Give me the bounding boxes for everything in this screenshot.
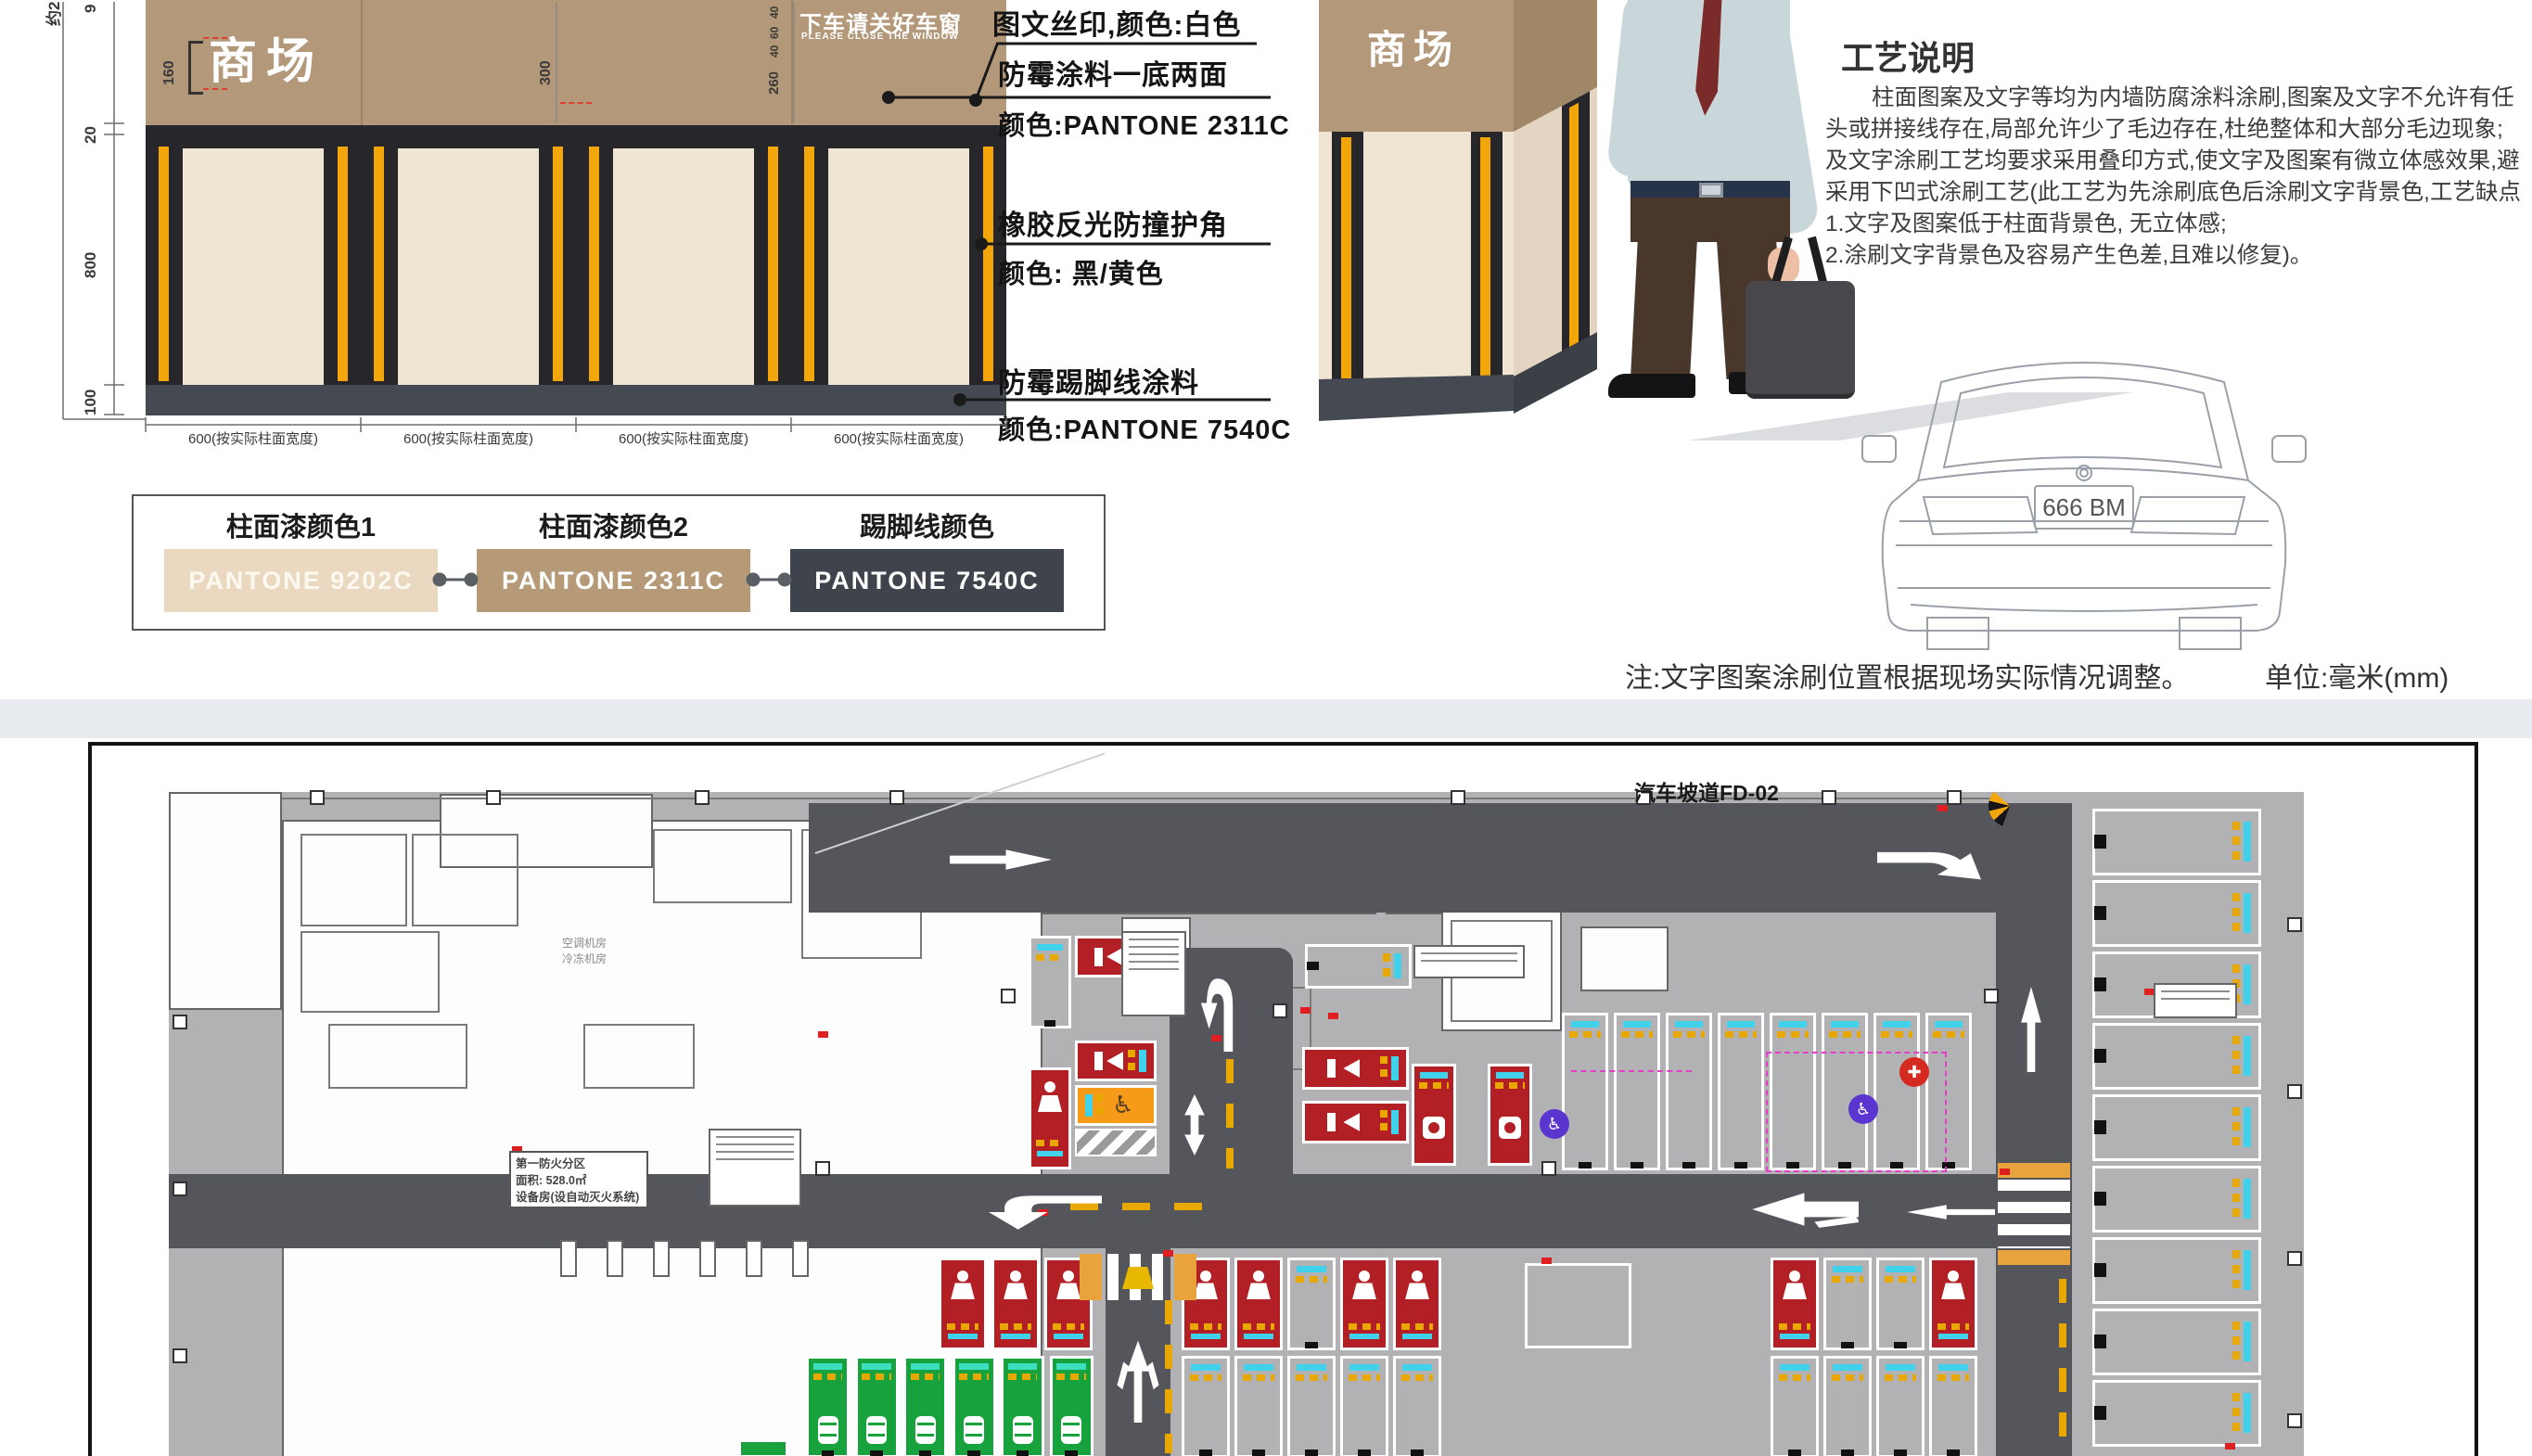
stall-mark bbox=[1777, 1031, 1808, 1038]
stall-mark bbox=[2244, 964, 2251, 1005]
room-outline bbox=[653, 829, 792, 903]
stall-mark bbox=[1496, 1072, 1523, 1079]
stall-mark bbox=[1243, 1374, 1275, 1381]
dim-about2: 约2 bbox=[41, 2, 64, 26]
stall-mark bbox=[2244, 822, 2251, 862]
stall-mark bbox=[1247, 1283, 1271, 1299]
stall-mark bbox=[1783, 1283, 1807, 1299]
stall-mark bbox=[1244, 1334, 1273, 1339]
room-outline bbox=[328, 1024, 467, 1089]
parking-stall-gh bbox=[2092, 1023, 2261, 1090]
stall-mark bbox=[1682, 1162, 1695, 1169]
dim-60: 60 bbox=[768, 27, 781, 39]
accessible-circle-icon: ♿ bbox=[1540, 1109, 1569, 1139]
fire-zone-line: 设备房(设自动灭火系统) bbox=[516, 1189, 642, 1206]
legend-swatch: PANTONE 9202C bbox=[164, 549, 438, 612]
corner-guard-yellow-stripe bbox=[159, 147, 169, 381]
unit-note: 单位:毫米(mm) bbox=[2265, 655, 2449, 696]
stall-mark bbox=[1343, 1113, 1360, 1131]
corner-guard-yellow-stripe bbox=[338, 147, 348, 381]
crosswalk bbox=[1998, 1180, 2070, 1248]
parking-stall-rvb bbox=[1412, 1064, 1456, 1166]
boundary-magenta-line bbox=[1571, 1070, 1692, 1072]
stall-mark bbox=[1727, 1021, 1756, 1028]
parking-stall-gh bbox=[2092, 1094, 2261, 1161]
stall-mark bbox=[1779, 1021, 1808, 1028]
stall-mark bbox=[1937, 1323, 1970, 1330]
parking-stall-gv bbox=[1876, 1258, 1925, 1350]
stall-mark bbox=[2244, 1036, 2251, 1077]
stall-mark bbox=[1725, 1031, 1756, 1038]
parking-stall-gh bbox=[2092, 1309, 2261, 1375]
stall-mark bbox=[2244, 1393, 2251, 1434]
parking-stall-gv bbox=[1287, 1258, 1336, 1350]
stall-mark bbox=[915, 1416, 936, 1444]
column-square bbox=[1451, 790, 1465, 805]
stall-mark bbox=[1841, 1450, 1855, 1456]
stall-mark bbox=[2244, 1250, 2251, 1291]
column-panel-pantone9202c bbox=[183, 148, 324, 385]
stall-mark bbox=[1305, 1342, 1319, 1348]
dim-300: 300 bbox=[538, 60, 555, 85]
parking-stall-gv bbox=[1876, 1356, 1925, 1456]
stall-mark bbox=[1106, 1052, 1123, 1070]
stall-mark bbox=[1734, 1162, 1747, 1169]
stall-mark bbox=[911, 1363, 940, 1370]
parking-stall-gh bbox=[2092, 1380, 2261, 1447]
corner-guard-yellow-stripe bbox=[804, 147, 814, 381]
stall-mark bbox=[1789, 1271, 1800, 1282]
stall-mark bbox=[1391, 1056, 1399, 1080]
car-icon-line bbox=[820, 1434, 837, 1437]
process-note-line: 头或拼接线存在,局部允许少了毛边存在,杜绝整体和大部分毛边现象; bbox=[1825, 111, 2503, 144]
pseudo-text-line bbox=[716, 1158, 794, 1160]
callout-line1: 防霉踢脚线涂料 bbox=[998, 360, 1199, 401]
stall-mark bbox=[959, 1363, 988, 1370]
stall-mark bbox=[1044, 1081, 1055, 1092]
callout-line2: 颜色:PANTONE 7540C bbox=[998, 408, 1291, 447]
building-zone bbox=[169, 792, 282, 1010]
dim-9: 9 bbox=[82, 5, 100, 13]
stall-mark bbox=[2232, 1036, 2240, 1077]
pseudo-text-line bbox=[1129, 939, 1179, 940]
column-square bbox=[2287, 1084, 2302, 1099]
stall-mark bbox=[1065, 1450, 1077, 1456]
stall-mark bbox=[1252, 1450, 1266, 1456]
guard-yellow-stripe bbox=[1341, 137, 1351, 378]
kickline-pantone7540c bbox=[146, 385, 1006, 415]
stall-mark bbox=[1788, 1450, 1802, 1456]
perspective-left-face: 商场 bbox=[1319, 0, 1514, 421]
car-icon-line bbox=[1063, 1423, 1080, 1425]
parking-stall-ev bbox=[806, 1356, 850, 1456]
stall-mark bbox=[959, 1373, 988, 1380]
process-note-line: 柱面图案及文字等均为内墙防腐涂料涂刷,图案及文字不允许有任 bbox=[1872, 80, 2514, 112]
corner-guard-yellow-stripe bbox=[589, 147, 599, 381]
dim-20: 20 bbox=[82, 126, 100, 144]
parking-stall-rv bbox=[1771, 1258, 1819, 1350]
column-panel-pantone9202c bbox=[828, 148, 969, 385]
parking-stall-rv bbox=[1393, 1258, 1441, 1350]
stall-mark bbox=[1675, 1021, 1704, 1028]
stall-mark bbox=[2094, 1192, 2106, 1206]
parking-stall-gv bbox=[1614, 1013, 1660, 1170]
stall-mark bbox=[2244, 1322, 2251, 1362]
stall-mark bbox=[1054, 1334, 1083, 1339]
room-outline bbox=[412, 834, 518, 926]
stall-mark bbox=[1420, 1072, 1447, 1079]
stall-mark bbox=[1779, 1374, 1811, 1381]
stall-mark bbox=[1937, 1374, 1970, 1381]
stall-mark bbox=[813, 1363, 842, 1370]
icon-dot bbox=[1504, 1122, 1515, 1133]
stall-mark bbox=[1349, 1323, 1381, 1330]
room-label: 冷冻机房 bbox=[562, 951, 673, 965]
pseudo-text-line bbox=[1129, 968, 1179, 970]
callout-line2: 颜色:PANTONE 2311C bbox=[998, 104, 1290, 143]
legend-title: 柱面漆颜色1 bbox=[164, 505, 438, 544]
dim-800: 800 bbox=[82, 252, 100, 278]
parking-stall-gh bbox=[2092, 809, 2261, 875]
corner-guard-yellow-stripe bbox=[983, 147, 993, 381]
stall-mark bbox=[1053, 1323, 1085, 1330]
column-square bbox=[1947, 790, 1962, 805]
stall-mark bbox=[862, 1363, 890, 1370]
red-align-mark bbox=[203, 37, 227, 39]
parking-stall-rv bbox=[939, 1258, 987, 1350]
stall-mark bbox=[1296, 1374, 1328, 1381]
room-outline bbox=[583, 1024, 695, 1089]
pantone-legend: 柱面漆颜色1PANTONE 9202C柱面漆颜色2PANTONE 2311C踢脚… bbox=[132, 494, 1106, 631]
column-square bbox=[310, 790, 325, 805]
column-square bbox=[1984, 989, 1999, 1003]
column-square bbox=[1541, 1161, 1556, 1176]
stall-mark bbox=[1579, 1162, 1592, 1169]
car-icon-line bbox=[868, 1434, 885, 1437]
pseudo-text-line bbox=[1421, 952, 1517, 954]
callout-line1: 防霉涂料一底两面 bbox=[998, 52, 1228, 93]
legend-title: 柱面漆颜色2 bbox=[477, 505, 750, 544]
width-label-600: 600(按实际柱面宽度) bbox=[403, 428, 533, 448]
road-arrow-merge bbox=[1746, 1185, 1859, 1233]
parking-stall-ev bbox=[1001, 1356, 1044, 1456]
lane-dash-line bbox=[1165, 1300, 1172, 1453]
stall-mark bbox=[919, 1450, 931, 1456]
pseudo-text-line bbox=[716, 1143, 794, 1145]
hatch-zone bbox=[1075, 1129, 1157, 1156]
fire-equipment-mark bbox=[818, 1031, 828, 1038]
stall-mark bbox=[2232, 822, 2240, 862]
parking-stall-gp bbox=[1525, 1263, 1631, 1348]
parking-stall-gv bbox=[1029, 936, 1071, 1028]
stall-mark bbox=[1327, 1059, 1336, 1078]
stall-mark bbox=[1883, 1021, 1912, 1028]
stall-mark bbox=[1423, 1117, 1445, 1139]
license-plate: 666 BM bbox=[2042, 493, 2126, 521]
process-note-line: 2.涂刷文字背景色及容易产生色差,且难以修复)。 bbox=[1825, 237, 2312, 270]
stall-mark bbox=[1191, 1364, 1221, 1371]
stall-mark bbox=[1358, 1450, 1372, 1456]
stall-mark bbox=[1894, 1342, 1908, 1348]
road-arrow-fork bbox=[1113, 1337, 1163, 1423]
road-arrow-left bbox=[1907, 1200, 1995, 1224]
adjust-note: 注:文字图案涂刷位置根据现场实际情况调整。 bbox=[1625, 655, 2189, 696]
parking-stall-gh bbox=[2092, 880, 2261, 947]
stall-mark bbox=[1017, 1450, 1029, 1456]
stall-mark bbox=[1297, 1364, 1326, 1371]
car-rear-illustration: 666 BM bbox=[1835, 306, 2335, 651]
lane-dash-line bbox=[1226, 1059, 1234, 1169]
stall-mark bbox=[1894, 1450, 1908, 1456]
annotation-box bbox=[1121, 931, 1186, 1016]
band-joint-line bbox=[361, 0, 363, 125]
stall-mark bbox=[1621, 1031, 1652, 1038]
column-panel-pantone9202c bbox=[613, 148, 754, 385]
parking-stall-gv bbox=[1823, 1356, 1872, 1456]
stall-mark bbox=[1623, 1021, 1652, 1028]
stall-mark bbox=[1139, 1050, 1146, 1072]
road-arrow-uturn bbox=[989, 1187, 1102, 1235]
stall-mark bbox=[2094, 977, 2106, 991]
pseudo-text-line bbox=[1421, 960, 1517, 962]
parking-stall-gv bbox=[1234, 1356, 1283, 1456]
stall-mark bbox=[1001, 1334, 1030, 1339]
stall-mark bbox=[1008, 1363, 1037, 1370]
stall-mark bbox=[957, 1271, 968, 1282]
left-leg bbox=[1630, 233, 1697, 382]
stall-mark bbox=[1036, 954, 1064, 961]
stall-mark bbox=[1349, 1374, 1381, 1381]
fire-zone-note: 第一防火分区面积: 528.0㎡设备房(设自动灭火系统) bbox=[509, 1151, 648, 1208]
stall-mark bbox=[1004, 1283, 1028, 1299]
column-square bbox=[2287, 917, 2302, 932]
column-square bbox=[889, 790, 904, 805]
stall-mark bbox=[1569, 1031, 1600, 1038]
stall-mark bbox=[2094, 1335, 2106, 1348]
stall-mark bbox=[2244, 893, 2251, 934]
section-divider-band bbox=[0, 699, 2532, 738]
stall-mark bbox=[2094, 1263, 2106, 1277]
stall-mark bbox=[870, 1450, 882, 1456]
building-zone bbox=[1580, 926, 1669, 991]
stall-mark bbox=[1935, 1021, 1963, 1028]
dim-100: 100 bbox=[82, 390, 100, 415]
stall-mark bbox=[1391, 1110, 1399, 1134]
fire-equipment-mark bbox=[1541, 1258, 1552, 1264]
shop-label-elevation: 商场 bbox=[209, 22, 324, 92]
stall-mark bbox=[1056, 1373, 1085, 1380]
stall-mark bbox=[1833, 1266, 1862, 1272]
stall-mark bbox=[1359, 1271, 1370, 1282]
width-label-600: 600(按实际柱面宽度) bbox=[834, 428, 964, 448]
stall-mark bbox=[1380, 1056, 1387, 1080]
stall-mark bbox=[1401, 1323, 1434, 1330]
car-icon-line bbox=[868, 1423, 885, 1425]
stall-mark bbox=[1349, 1334, 1379, 1339]
stall-mark bbox=[1402, 1364, 1432, 1371]
stall-mark bbox=[1010, 1271, 1021, 1282]
ramp-label: 汽车坡道FD-02 bbox=[1634, 775, 1912, 801]
fire-equipment-mark bbox=[2000, 1169, 2010, 1175]
car-icon-line bbox=[965, 1423, 982, 1425]
stall-mark bbox=[1401, 1374, 1434, 1381]
stall-mark bbox=[2094, 835, 2106, 849]
stall-mark bbox=[1190, 1374, 1222, 1381]
parking-stall-gv bbox=[1666, 1013, 1712, 1170]
crosswalk-pad bbox=[1080, 1254, 1102, 1300]
stall-mark bbox=[2232, 1393, 2240, 1434]
process-note-line: 1.文字及图案低于柱面背景色, 无立体感; bbox=[1825, 206, 2227, 238]
parking-stall-ev bbox=[903, 1356, 947, 1456]
stall-mark bbox=[1885, 1374, 1917, 1381]
stall-mark bbox=[948, 1334, 978, 1339]
stall-mark bbox=[1094, 948, 1103, 966]
stall-mark bbox=[1780, 1364, 1809, 1371]
shop-label-perspective: 商场 bbox=[1367, 19, 1460, 75]
stall-mark bbox=[1394, 953, 1401, 979]
belt-buckle bbox=[1699, 183, 1723, 198]
floor-plan-panel: ♿♿♿✚第一防火分区面积: 528.0㎡设备房(设自动灭火系统)空调机房冷冻机房… bbox=[88, 742, 2478, 1456]
stall-mark bbox=[1128, 1050, 1135, 1072]
road-arrow-uturnup bbox=[1200, 976, 1241, 1052]
stall-mark bbox=[2094, 906, 2106, 920]
column-square bbox=[1001, 989, 1016, 1003]
stall-mark bbox=[1190, 1323, 1222, 1330]
stall-mark bbox=[1938, 1364, 1968, 1371]
stall-mark bbox=[2232, 1322, 2240, 1362]
parking-stall-rv bbox=[1340, 1258, 1388, 1350]
stall-mark bbox=[2094, 1406, 2106, 1420]
stall-mark bbox=[1832, 1374, 1864, 1381]
stall-mark bbox=[1947, 1450, 1961, 1456]
column-square bbox=[173, 1181, 187, 1196]
stall-mark bbox=[1885, 1276, 1917, 1283]
stall-mark bbox=[2232, 1250, 2240, 1291]
parking-stall-gv bbox=[1771, 1356, 1819, 1456]
corner-guard-yellow-stripe bbox=[553, 147, 563, 381]
equipment-symbol bbox=[746, 1240, 762, 1277]
fire-zone-line: 第一防火分区 bbox=[516, 1156, 642, 1172]
pseudo-text-line bbox=[1129, 953, 1179, 955]
car-icon-line bbox=[917, 1423, 934, 1425]
stall-mark bbox=[1833, 1364, 1862, 1371]
stall-mark bbox=[1044, 1020, 1056, 1027]
stall-mark bbox=[1402, 1334, 1432, 1339]
stall-mark bbox=[862, 1373, 890, 1380]
stall-mark bbox=[1038, 1095, 1062, 1112]
stall-mark bbox=[1829, 1031, 1860, 1038]
process-notes-title: 工艺说明 bbox=[1841, 32, 1975, 80]
accessible-circle-icon: ♿ bbox=[1848, 1094, 1878, 1124]
hydrant-circle-icon: ✚ bbox=[1899, 1057, 1929, 1087]
callout-line2: 颜色: 黑/黄色 bbox=[998, 252, 1164, 291]
stall-mark bbox=[1495, 1082, 1525, 1089]
corner-guard-yellow-stripe bbox=[374, 147, 384, 381]
stall-mark bbox=[1380, 1110, 1387, 1134]
stall-mark bbox=[1000, 1323, 1032, 1330]
legend-title: 踢脚线颜色 bbox=[790, 505, 1064, 544]
stall-mark bbox=[1297, 1266, 1326, 1272]
column-square bbox=[2287, 1413, 2302, 1428]
callout-line1: 橡胶反光防撞护角 bbox=[998, 202, 1228, 243]
car-icon-line bbox=[917, 1434, 934, 1437]
parking-stall-gh bbox=[1305, 944, 1412, 989]
stall-mark bbox=[818, 1416, 838, 1444]
stall-mark bbox=[1037, 1151, 1063, 1156]
equipment-symbol bbox=[653, 1240, 670, 1277]
stall-mark bbox=[964, 1416, 984, 1444]
dim-160: 160 bbox=[161, 60, 178, 85]
stall-mark bbox=[1191, 1334, 1221, 1339]
parking-stall-gv bbox=[1182, 1356, 1230, 1456]
stall-mark bbox=[1056, 1283, 1081, 1299]
car-icon-line bbox=[1063, 1434, 1080, 1437]
stall-mark bbox=[1673, 1031, 1704, 1038]
fire-equipment-mark bbox=[1163, 1250, 1173, 1257]
corner-guard-yellow-stripe bbox=[768, 147, 778, 381]
stall-mark bbox=[1243, 1323, 1275, 1330]
stall-mark bbox=[1412, 1271, 1423, 1282]
guard-yellow-stripe bbox=[1480, 137, 1490, 378]
stall-mark bbox=[1096, 1094, 1104, 1117]
stall-mark bbox=[1305, 1450, 1319, 1456]
stall-mark bbox=[1008, 1373, 1037, 1380]
pseudo-text-line bbox=[1129, 946, 1179, 948]
legend-swatch: PANTONE 7540C bbox=[790, 549, 1064, 612]
parking-stall-rv bbox=[991, 1258, 1040, 1350]
stall-mark bbox=[1571, 1021, 1600, 1028]
parking-stall-gv bbox=[1340, 1356, 1388, 1456]
car-icon-line bbox=[1015, 1423, 1031, 1425]
process-note-line: 采用下凹式涂刷工艺(此工艺为先涂刷底色后涂刷文字背景色,工艺缺点 bbox=[1825, 174, 2521, 207]
parking-stall-gh bbox=[2092, 1237, 2261, 1304]
stall-mark bbox=[1499, 1117, 1521, 1139]
stall-mark bbox=[1779, 1323, 1811, 1330]
stall-mark bbox=[2244, 1179, 2251, 1220]
stall-mark bbox=[1085, 1094, 1093, 1117]
stall-mark bbox=[1194, 1283, 1218, 1299]
close-window-sign-en: PLEASE CLOSE THE WINDOW bbox=[801, 32, 959, 42]
bracket-160 bbox=[188, 41, 203, 95]
parking-stall-green-stub bbox=[738, 1439, 788, 1456]
column-panel-pantone9202c bbox=[398, 148, 539, 385]
stall-mark bbox=[1886, 1266, 1915, 1272]
column-square bbox=[173, 1015, 187, 1029]
pseudo-text-line bbox=[716, 1136, 794, 1138]
stall-mark bbox=[1343, 1059, 1360, 1078]
stall-mark bbox=[1938, 1334, 1968, 1339]
parking-stall-rv bbox=[1929, 1258, 1977, 1350]
parking-stall-ev bbox=[1050, 1356, 1093, 1456]
stall-mark bbox=[951, 1283, 975, 1299]
column-perspective-view: 商场 bbox=[1319, 0, 1597, 428]
left-shoe bbox=[1608, 374, 1695, 398]
crosswalk-pad bbox=[1998, 1250, 2070, 1265]
fire-equipment-mark bbox=[1328, 1013, 1338, 1019]
stall-mark bbox=[1063, 1271, 1074, 1282]
parking-stall-gh bbox=[2092, 1166, 2261, 1232]
parking-stall-rvb bbox=[1488, 1064, 1532, 1166]
equipment-symbol bbox=[792, 1240, 809, 1277]
parking-stall-rv bbox=[1029, 1067, 1071, 1169]
stall-mark bbox=[1296, 1276, 1328, 1283]
dim-260: 260 bbox=[766, 71, 782, 95]
parking-stall-rv bbox=[1234, 1258, 1283, 1350]
band-joint-line bbox=[791, 0, 793, 125]
column-square bbox=[486, 790, 501, 805]
equipment-symbol bbox=[699, 1240, 716, 1277]
lane-dash-line bbox=[2059, 1279, 2066, 1455]
